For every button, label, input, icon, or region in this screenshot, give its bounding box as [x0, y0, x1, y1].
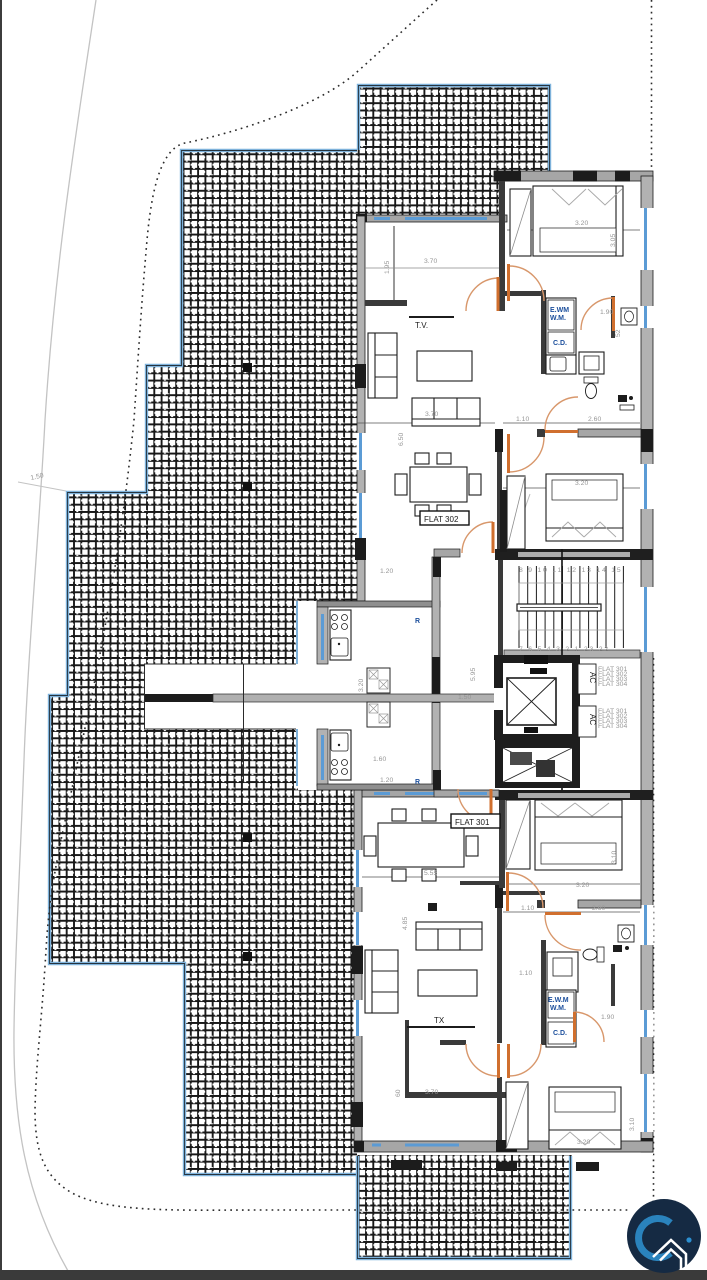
svg-text:E.W.M: E.W.M [548, 997, 569, 1004]
svg-text:1.10: 1.10 [519, 970, 532, 977]
svg-text:1.10: 1.10 [521, 905, 534, 912]
svg-text:3.20: 3.20 [358, 679, 365, 692]
svg-text:1.20: 1.20 [380, 568, 393, 575]
svg-text:AC: AC [588, 714, 597, 725]
svg-text:5.95: 5.95 [470, 668, 477, 681]
svg-text:3.20: 3.20 [575, 480, 588, 487]
svg-text:1.95: 1.95 [384, 261, 391, 274]
svg-text:2.60: 2.60 [592, 905, 605, 912]
svg-text:3.20: 3.20 [577, 1139, 590, 1146]
svg-text:1.20: 1.20 [380, 777, 393, 784]
svg-text:AC: AC [588, 672, 597, 683]
svg-text:R: R [415, 618, 420, 625]
svg-text:52: 52 [615, 329, 622, 337]
svg-text:C.D.: C.D. [553, 340, 567, 347]
svg-text:FLAT 304: FLAT 304 [598, 723, 627, 730]
svg-text:3.20: 3.20 [575, 220, 588, 227]
svg-text:FLAT 302: FLAT 302 [424, 515, 459, 524]
svg-text:1.50: 1.50 [458, 694, 471, 701]
svg-text:E.WM: E.WM [550, 307, 569, 314]
svg-text:3.05: 3.05 [610, 234, 617, 247]
svg-text:3.10: 3.10 [629, 1118, 636, 1131]
svg-text:1.60: 1.60 [373, 756, 386, 763]
svg-text:R: R [415, 779, 420, 786]
svg-text:W.M.: W.M. [550, 315, 566, 322]
svg-text:3.70: 3.70 [424, 258, 437, 265]
svg-text:2.60: 2.60 [588, 416, 601, 423]
svg-text:C.D.: C.D. [553, 1030, 567, 1037]
svg-text:60: 60 [395, 1089, 402, 1097]
svg-text:6.50: 6.50 [398, 433, 405, 446]
svg-text:3.20: 3.20 [576, 882, 589, 889]
svg-text:1.10: 1.10 [516, 416, 529, 423]
svg-text:1.90: 1.90 [601, 1014, 614, 1021]
svg-text:5.55: 5.55 [424, 870, 437, 877]
svg-text:FLAT 304: FLAT 304 [598, 681, 627, 688]
svg-text:1.90: 1.90 [600, 309, 613, 316]
svg-text:7 6 5 4 3 2 1 23 22: 7 6 5 4 3 2 1 23 22 [519, 646, 610, 653]
svg-text:T.V.: T.V. [415, 321, 428, 330]
svg-text:FLAT 301: FLAT 301 [455, 818, 490, 827]
svg-text:3.70: 3.70 [425, 411, 438, 418]
svg-text:TX: TX [434, 1016, 445, 1025]
svg-text:W.M.: W.M. [550, 1005, 566, 1012]
svg-text:3.10: 3.10 [611, 851, 618, 864]
svg-text:4.85: 4.85 [402, 917, 409, 930]
svg-text:3.70: 3.70 [425, 1089, 438, 1096]
svg-text:8 9 10 11 12 13 14 15: 8 9 10 11 12 13 14 15 [519, 567, 622, 574]
